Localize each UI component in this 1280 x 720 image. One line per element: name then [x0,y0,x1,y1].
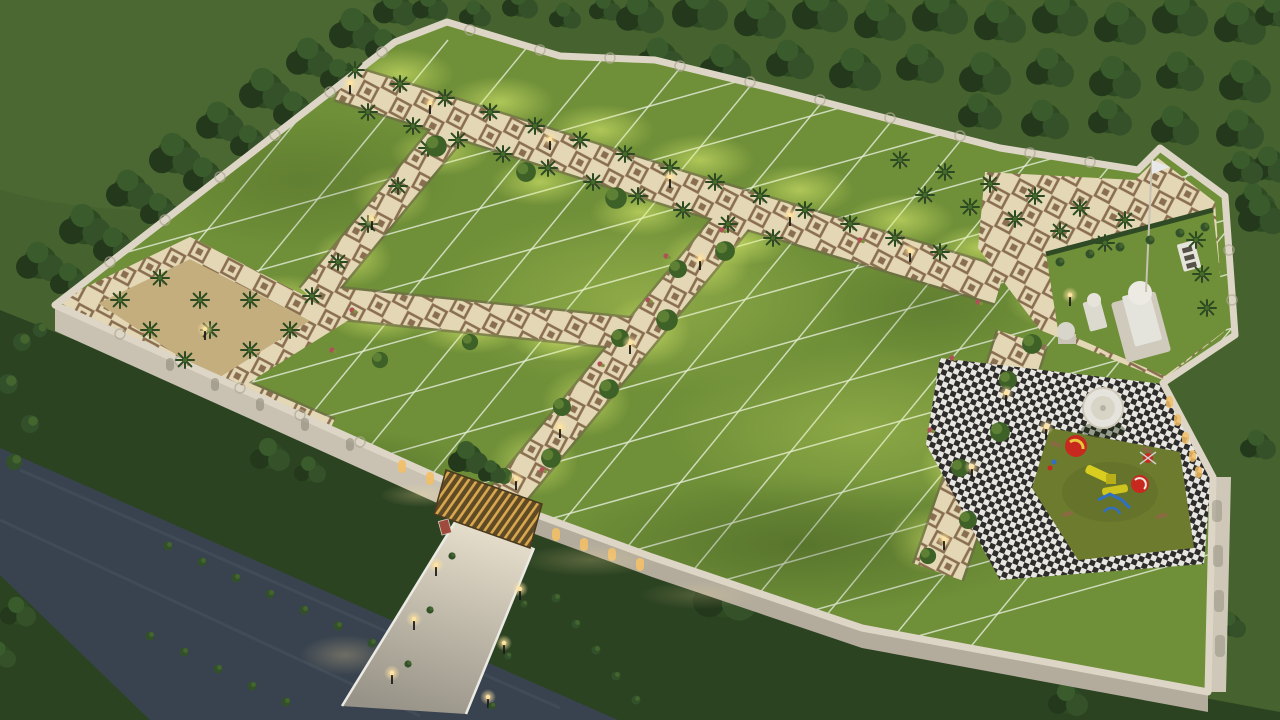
gazebo-finial [1100,405,1106,411]
render-viewport [0,0,1280,720]
slide-tower [1106,474,1116,484]
site-render [0,0,1280,720]
shrine-dome [1087,293,1101,307]
gazebo [1081,388,1125,438]
kid-figure [1052,460,1057,465]
temple-dome [1128,281,1152,305]
pavilion-dome [1057,322,1075,340]
kid-figure-2 [1048,466,1053,471]
